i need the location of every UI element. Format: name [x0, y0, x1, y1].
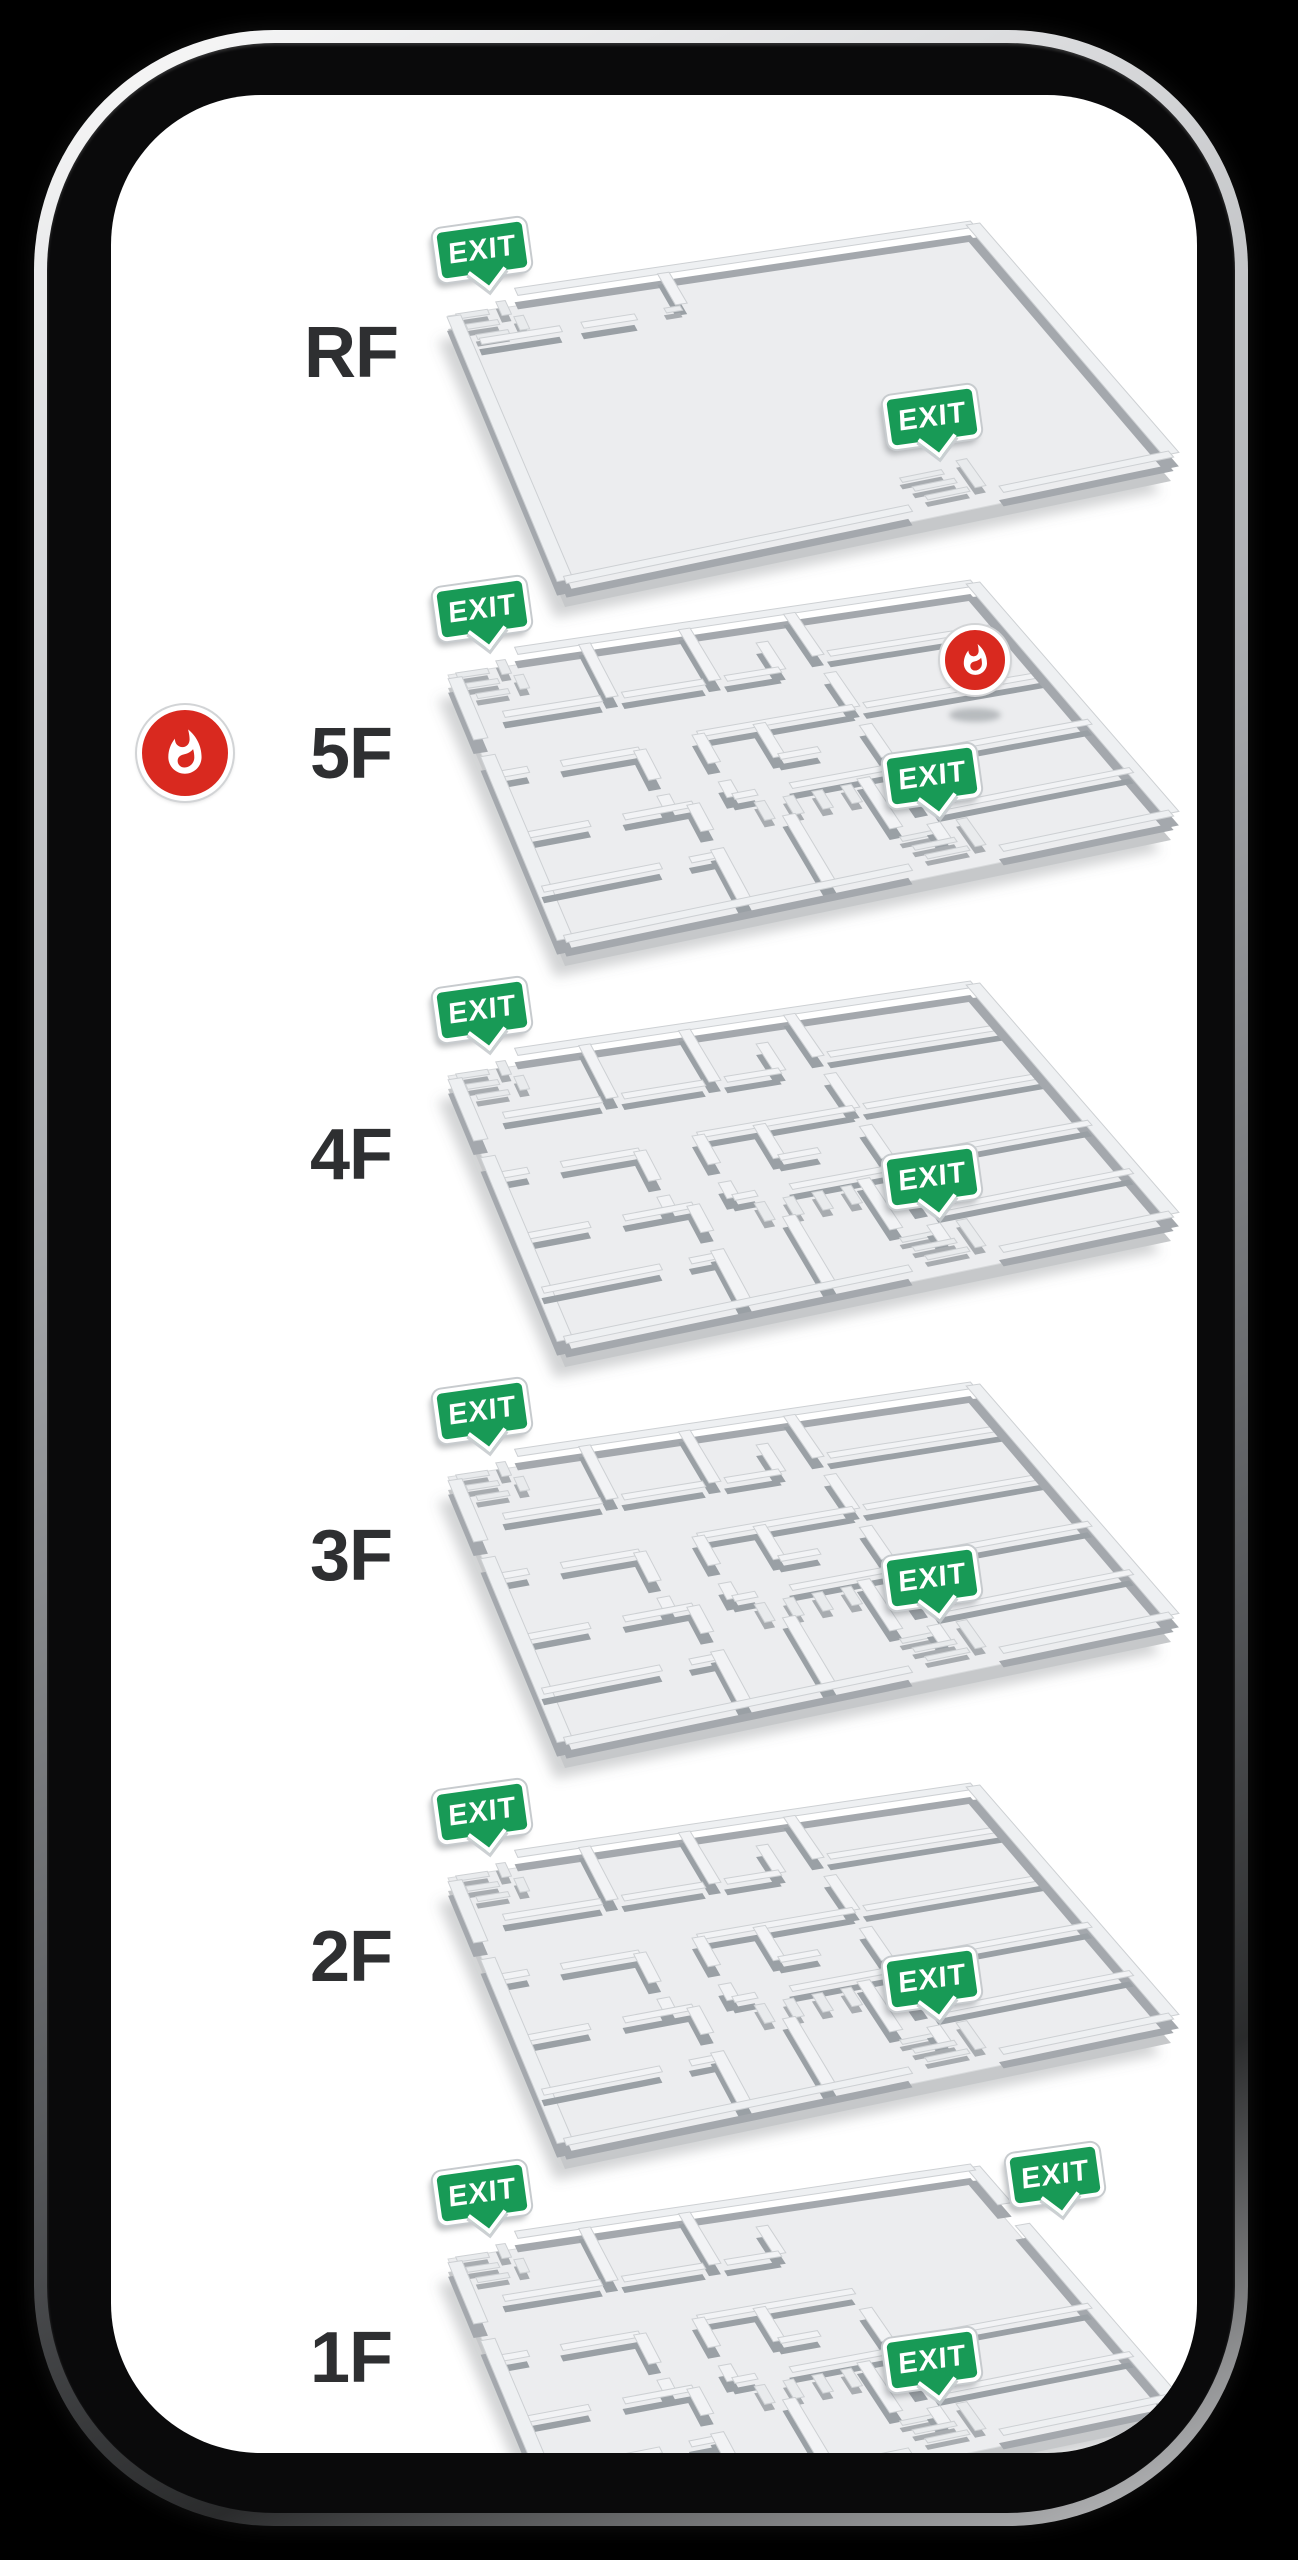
floor-plan-2f: [111, 1768, 1197, 2198]
floor-row-3f: 3FEXITEXIT: [111, 1367, 1197, 1767]
phone-screen: RFEXITEXIT5FEXITEXIT4FEXITEXIT3FEXITEXIT…: [111, 95, 1197, 2453]
exit-sign-label: EXIT: [447, 588, 517, 631]
exit-sign-label: EXIT: [897, 1156, 967, 1199]
exit-sign-label: EXIT: [447, 229, 517, 272]
exit-sign-label: EXIT: [897, 2339, 967, 2382]
fire-icon-floor-5f: [137, 705, 233, 801]
floor-plan-4f: [111, 966, 1197, 1396]
exit-sign-label: EXIT: [447, 2172, 517, 2215]
exit-sign-label: EXIT: [447, 1390, 517, 1433]
exit-sign-label: EXIT: [897, 1958, 967, 2001]
exit-sign-label: EXIT: [1020, 2154, 1090, 2197]
floor-row-5f: 5FEXITEXIT: [111, 565, 1197, 965]
exit-sign-label: EXIT: [897, 396, 967, 439]
floor-plan-3f: [111, 1367, 1197, 1797]
floor-row-rf: RFEXITEXIT: [111, 164, 1197, 564]
floor-row-1f: 1FEXITEXITEXIT: [111, 2169, 1197, 2453]
floor-plan-5f: [111, 565, 1197, 995]
flame-glyph: [958, 643, 993, 678]
evacuation-floor-map-screenshot: { "device": { "kind": "smartphone mockup…: [0, 0, 1298, 2560]
phone-bezel: RFEXITEXIT5FEXITEXIT4FEXITEXIT3FEXITEXIT…: [47, 43, 1235, 2513]
phone-frame: RFEXITEXIT5FEXITEXIT4FEXITEXIT3FEXITEXIT…: [34, 30, 1248, 2526]
exit-sign-label: EXIT: [897, 755, 967, 798]
exit-sign-label: EXIT: [447, 1791, 517, 1834]
exit-sign-label: EXIT: [447, 989, 517, 1032]
exit-sign-label: EXIT: [897, 1557, 967, 1600]
fire-icon-shadow: [949, 708, 1001, 722]
flame-glyph: [160, 728, 210, 778]
floor-row-4f: 4FEXITEXIT: [111, 966, 1197, 1366]
fire-icon-on-plan-5f: [940, 625, 1010, 695]
floor-row-2f: 2FEXITEXIT: [111, 1768, 1197, 2168]
floor-plan-rf: [111, 164, 1197, 594]
floor-plan-1f: [111, 2169, 1197, 2453]
